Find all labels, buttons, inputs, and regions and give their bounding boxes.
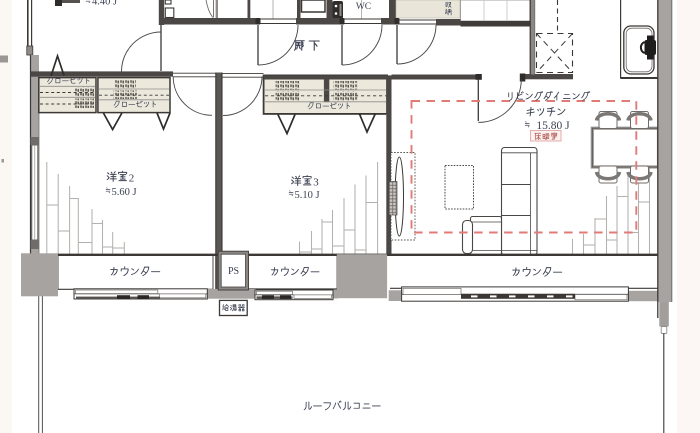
svg-text:3: 3 bbox=[313, 177, 319, 189]
svg-text:WC: WC bbox=[356, 2, 371, 12]
svg-text:15.80 J: 15.80 J bbox=[536, 120, 570, 132]
svg-text:5.10 J: 5.10 J bbox=[294, 190, 319, 201]
svg-text:4.40 J: 4.40 J bbox=[92, 0, 117, 8]
svg-text:PS: PS bbox=[228, 266, 239, 277]
svg-text:5.60 J: 5.60 J bbox=[111, 187, 136, 198]
svg-text:2: 2 bbox=[129, 172, 135, 184]
